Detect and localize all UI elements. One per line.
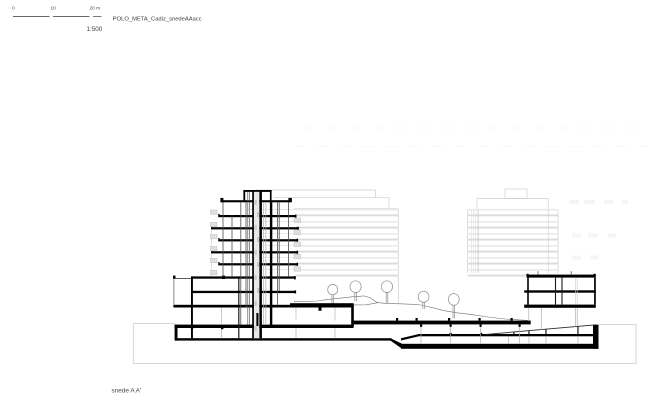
svg-text:10: 10 [51,6,57,12]
svg-text:0: 0 [12,6,15,12]
svg-text:20 m: 20 m [90,6,101,12]
svg-text:POLO_META_Cadiz_snedeAAacc: POLO_META_Cadiz_snedeAAacc [113,16,202,22]
svg-text:1:500: 1:500 [87,26,103,33]
svg-text:snede A A': snede A A' [112,388,142,395]
